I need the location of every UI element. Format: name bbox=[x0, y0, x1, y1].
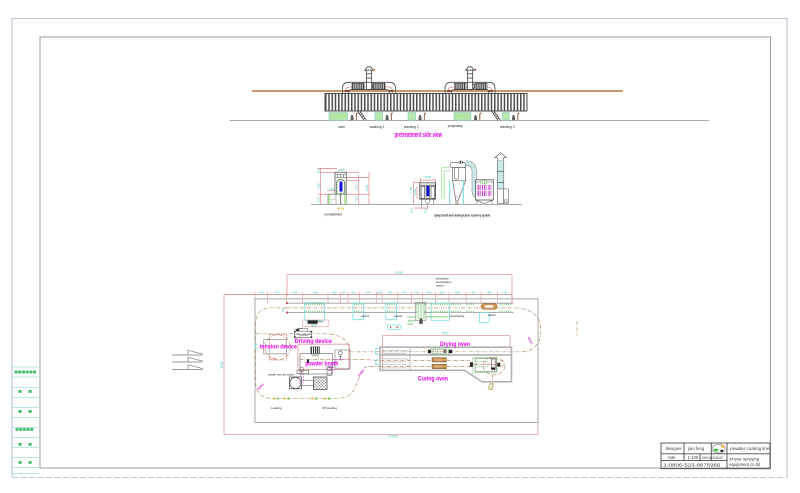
svg-text:1760: 1760 bbox=[259, 292, 265, 294]
svg-text:Driving device: Driving device bbox=[295, 338, 333, 345]
svg-text:2600: 2600 bbox=[426, 292, 432, 294]
svg-text:pretreatment: pretreatment bbox=[325, 211, 343, 216]
svg-text:5000: 5000 bbox=[220, 361, 224, 368]
svg-text:tank: tank bbox=[408, 322, 414, 326]
svg-text:1100: 1100 bbox=[377, 292, 383, 294]
svg-text:wash2: wash2 bbox=[394, 314, 402, 318]
svg-text:1443: 1443 bbox=[366, 292, 372, 294]
svg-text:1650: 1650 bbox=[487, 292, 493, 294]
svg-text:1008: 1008 bbox=[338, 168, 345, 172]
svg-text:1760: 1760 bbox=[502, 292, 508, 294]
svg-text:2370: 2370 bbox=[275, 292, 281, 294]
svg-text:washing 1: washing 1 bbox=[370, 125, 385, 129]
svg-text:29050: 29050 bbox=[395, 271, 404, 275]
svg-text:phosphating: phosphating bbox=[450, 314, 465, 318]
svg-text:spray booth and monocyclone re: spray booth and monocyclone recovery sys… bbox=[434, 213, 490, 218]
svg-text:1350: 1350 bbox=[413, 188, 417, 195]
svg-text:1700: 1700 bbox=[292, 292, 298, 294]
svg-text:powder coating line: powder coating line bbox=[730, 446, 770, 451]
svg-text:1650: 1650 bbox=[440, 292, 446, 294]
svg-text:phosphating: phosphating bbox=[448, 124, 463, 128]
svg-text:Curing oven: Curing oven bbox=[418, 376, 448, 383]
svg-text:3150: 3150 bbox=[365, 184, 369, 191]
svg-text:200: 200 bbox=[316, 168, 320, 173]
svg-text:washing 3: washing 3 bbox=[500, 125, 515, 129]
svg-text:Drying oven: Drying oven bbox=[440, 341, 470, 348]
svg-text:1:100: 1:100 bbox=[688, 455, 699, 460]
svg-text:washing 2: washing 2 bbox=[404, 125, 419, 129]
svg-text:1750: 1750 bbox=[355, 184, 359, 191]
svg-text:equipment co.ltd: equipment co.ltd bbox=[729, 462, 761, 467]
svg-text:27500: 27500 bbox=[388, 435, 398, 439]
svg-text:M500: M500 bbox=[311, 324, 318, 327]
svg-text:wash1: wash1 bbox=[361, 314, 369, 318]
svg-text:1-0806-523-8875966: 1-0806-523-8875966 bbox=[663, 463, 721, 468]
svg-text:powder recovery system: powder recovery system bbox=[268, 373, 295, 377]
svg-text:400: 400 bbox=[410, 208, 414, 213]
svg-text:1650: 1650 bbox=[414, 292, 420, 294]
svg-text:jiao feng: jiao feng bbox=[687, 446, 705, 451]
svg-text:928: 928 bbox=[330, 187, 335, 191]
svg-text:3000: 3000 bbox=[313, 292, 319, 294]
svg-text:1008: 1008 bbox=[425, 175, 432, 179]
svg-text:pretreatment side view: pretreatment side view bbox=[395, 130, 443, 139]
svg-text:09/14: 09/14 bbox=[702, 455, 713, 460]
svg-text:005&07: 005&07 bbox=[712, 456, 723, 460]
svg-text:700: 700 bbox=[355, 196, 359, 201]
svg-text:13x600: 13x600 bbox=[269, 357, 278, 360]
svg-text:1700: 1700 bbox=[402, 292, 408, 294]
svg-text:Loading: Loading bbox=[271, 406, 282, 410]
svg-text:skim: skim bbox=[339, 125, 346, 129]
svg-text:2658: 2658 bbox=[455, 292, 461, 294]
svg-text:7500: 7500 bbox=[441, 332, 448, 336]
svg-text:designer: designer bbox=[666, 446, 683, 451]
svg-text:rate: rate bbox=[668, 455, 676, 460]
svg-text:powder booth: powder booth bbox=[305, 360, 338, 367]
svg-text:tower: tower bbox=[436, 284, 444, 288]
svg-text:skim: skim bbox=[315, 319, 323, 323]
svg-text:600: 600 bbox=[316, 197, 320, 202]
svg-text:1650: 1650 bbox=[332, 292, 338, 294]
svg-text:Off loading: Off loading bbox=[322, 406, 337, 410]
svg-text:tension device: tension device bbox=[260, 344, 298, 351]
svg-text:wash3: wash3 bbox=[488, 313, 496, 317]
svg-text:400: 400 bbox=[424, 208, 428, 213]
svg-text:xinyue spraying: xinyue spraying bbox=[729, 456, 760, 461]
svg-text:1750: 1750 bbox=[316, 183, 320, 190]
